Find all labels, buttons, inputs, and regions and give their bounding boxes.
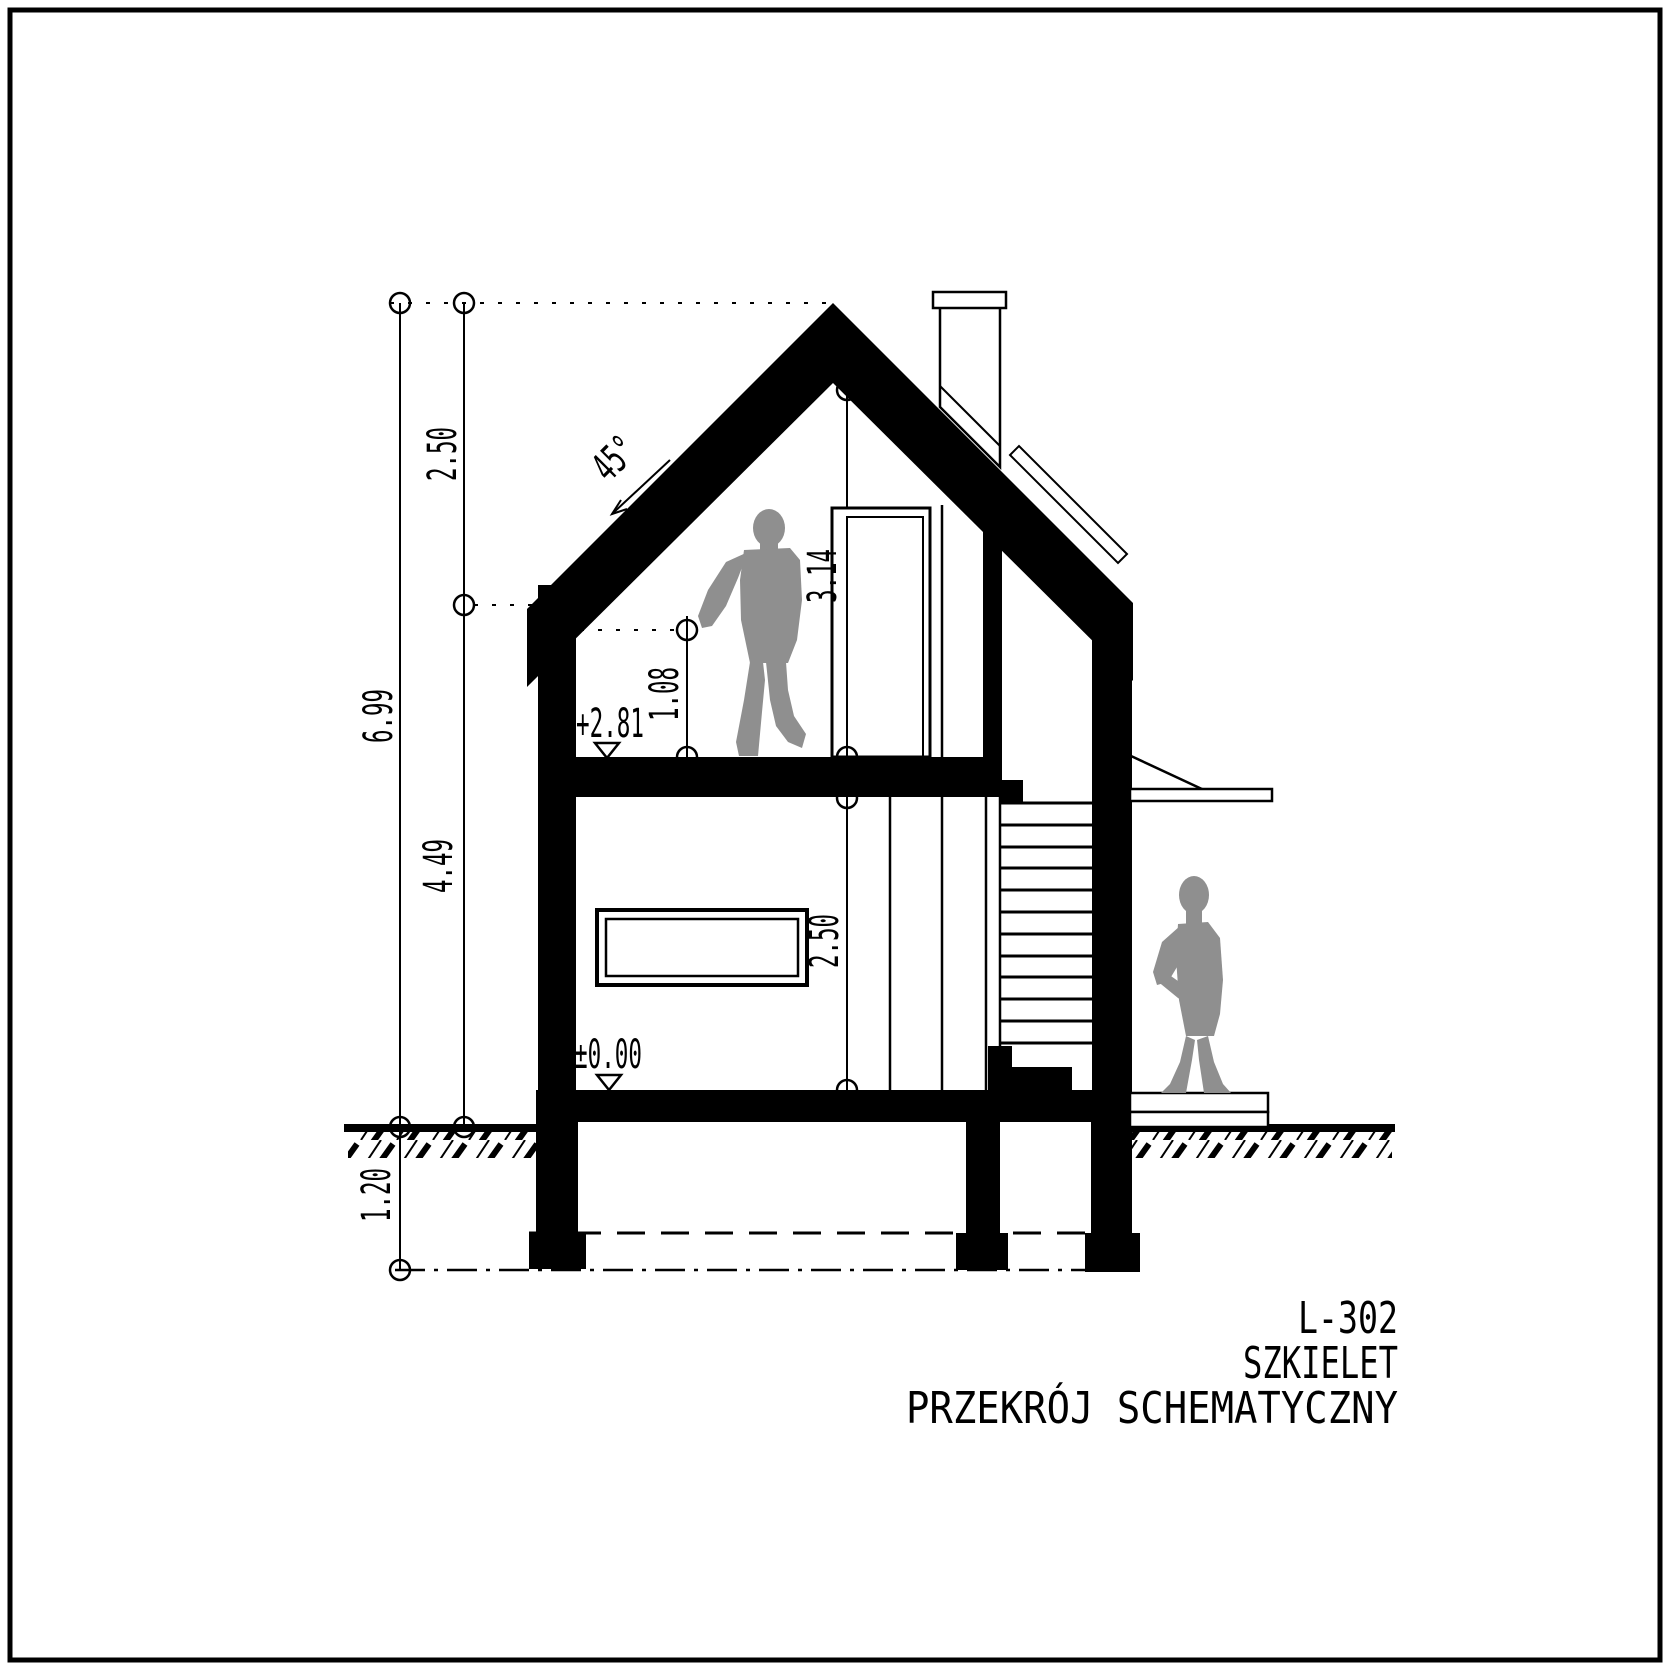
wall-left	[538, 585, 576, 1090]
woman-neck	[1186, 908, 1202, 924]
footing-left	[529, 1233, 586, 1269]
stair-bottom-steps	[988, 1046, 1072, 1090]
dim-roof-rise-label: 2.50	[420, 427, 466, 481]
woman-left-leg	[1161, 1036, 1195, 1093]
attic-stair-wall	[983, 520, 1002, 760]
level-ground-floor-label: ±0.00	[574, 1032, 642, 1078]
ground-floor-window	[597, 910, 807, 985]
soil-hatch-left	[348, 1131, 540, 1158]
roof-angle-label: 45°	[583, 427, 647, 491]
stair-treads	[1001, 803, 1092, 1043]
man-front-leg	[736, 662, 765, 756]
level-attic-floor-label: +2.81	[576, 701, 644, 747]
foundation-column-middle	[966, 1122, 1000, 1233]
entrance-canopy-slab	[1130, 789, 1272, 801]
dim-ridge-to-floor-label: 3.14	[800, 549, 846, 603]
dim-knee-wall-label: 1.08	[642, 667, 688, 721]
foundation-column-right	[1091, 1122, 1132, 1233]
dim-storey-height-label: 2.50	[802, 914, 848, 968]
terrace-deck	[1130, 1093, 1268, 1112]
canopy-brace-line	[1131, 756, 1204, 790]
terrace-base	[1130, 1112, 1268, 1127]
ground	[344, 1128, 1395, 1158]
soil-hatch-right	[1130, 1131, 1392, 1158]
project-name: SZKIELET	[1243, 1338, 1398, 1389]
person-silhouette-woman	[1153, 876, 1231, 1093]
footing-right	[1085, 1233, 1140, 1272]
drawing-sheet: 2.50 6.99 4.49 1.20 3.14 1.08 2.50 45° +…	[0, 0, 1670, 1668]
attic-floor-slab	[576, 757, 1002, 797]
section-drawing: 2.50 6.99 4.49 1.20 3.14 1.08 2.50 45° +…	[0, 0, 1670, 1668]
person-silhouette-man	[698, 509, 806, 756]
title-block: L-302 SZKIELET PRZEKRÓJ SCHEMATYCZNY	[906, 1293, 1398, 1434]
drawing-title: PRZEKRÓJ SCHEMATYCZNY	[906, 1381, 1398, 1434]
drawing-code: L-302	[1298, 1293, 1398, 1344]
stair-top-step	[1001, 780, 1023, 803]
man-torso	[740, 548, 802, 663]
foundation-column-left	[536, 1122, 578, 1233]
footing-middle	[956, 1233, 1008, 1270]
wall-right	[1092, 620, 1132, 1090]
page-border	[10, 10, 1660, 1660]
ground-floor-slab	[536, 1090, 1132, 1122]
woman-right-leg	[1197, 1036, 1231, 1093]
dim-foundation-depth-label: 1.20	[354, 1168, 400, 1222]
man-rear-leg	[766, 662, 806, 748]
dim-eave-height-label: 4.49	[416, 839, 462, 893]
chimney-cap	[933, 292, 1006, 308]
dim-total-height-label: 6.99	[356, 689, 402, 743]
